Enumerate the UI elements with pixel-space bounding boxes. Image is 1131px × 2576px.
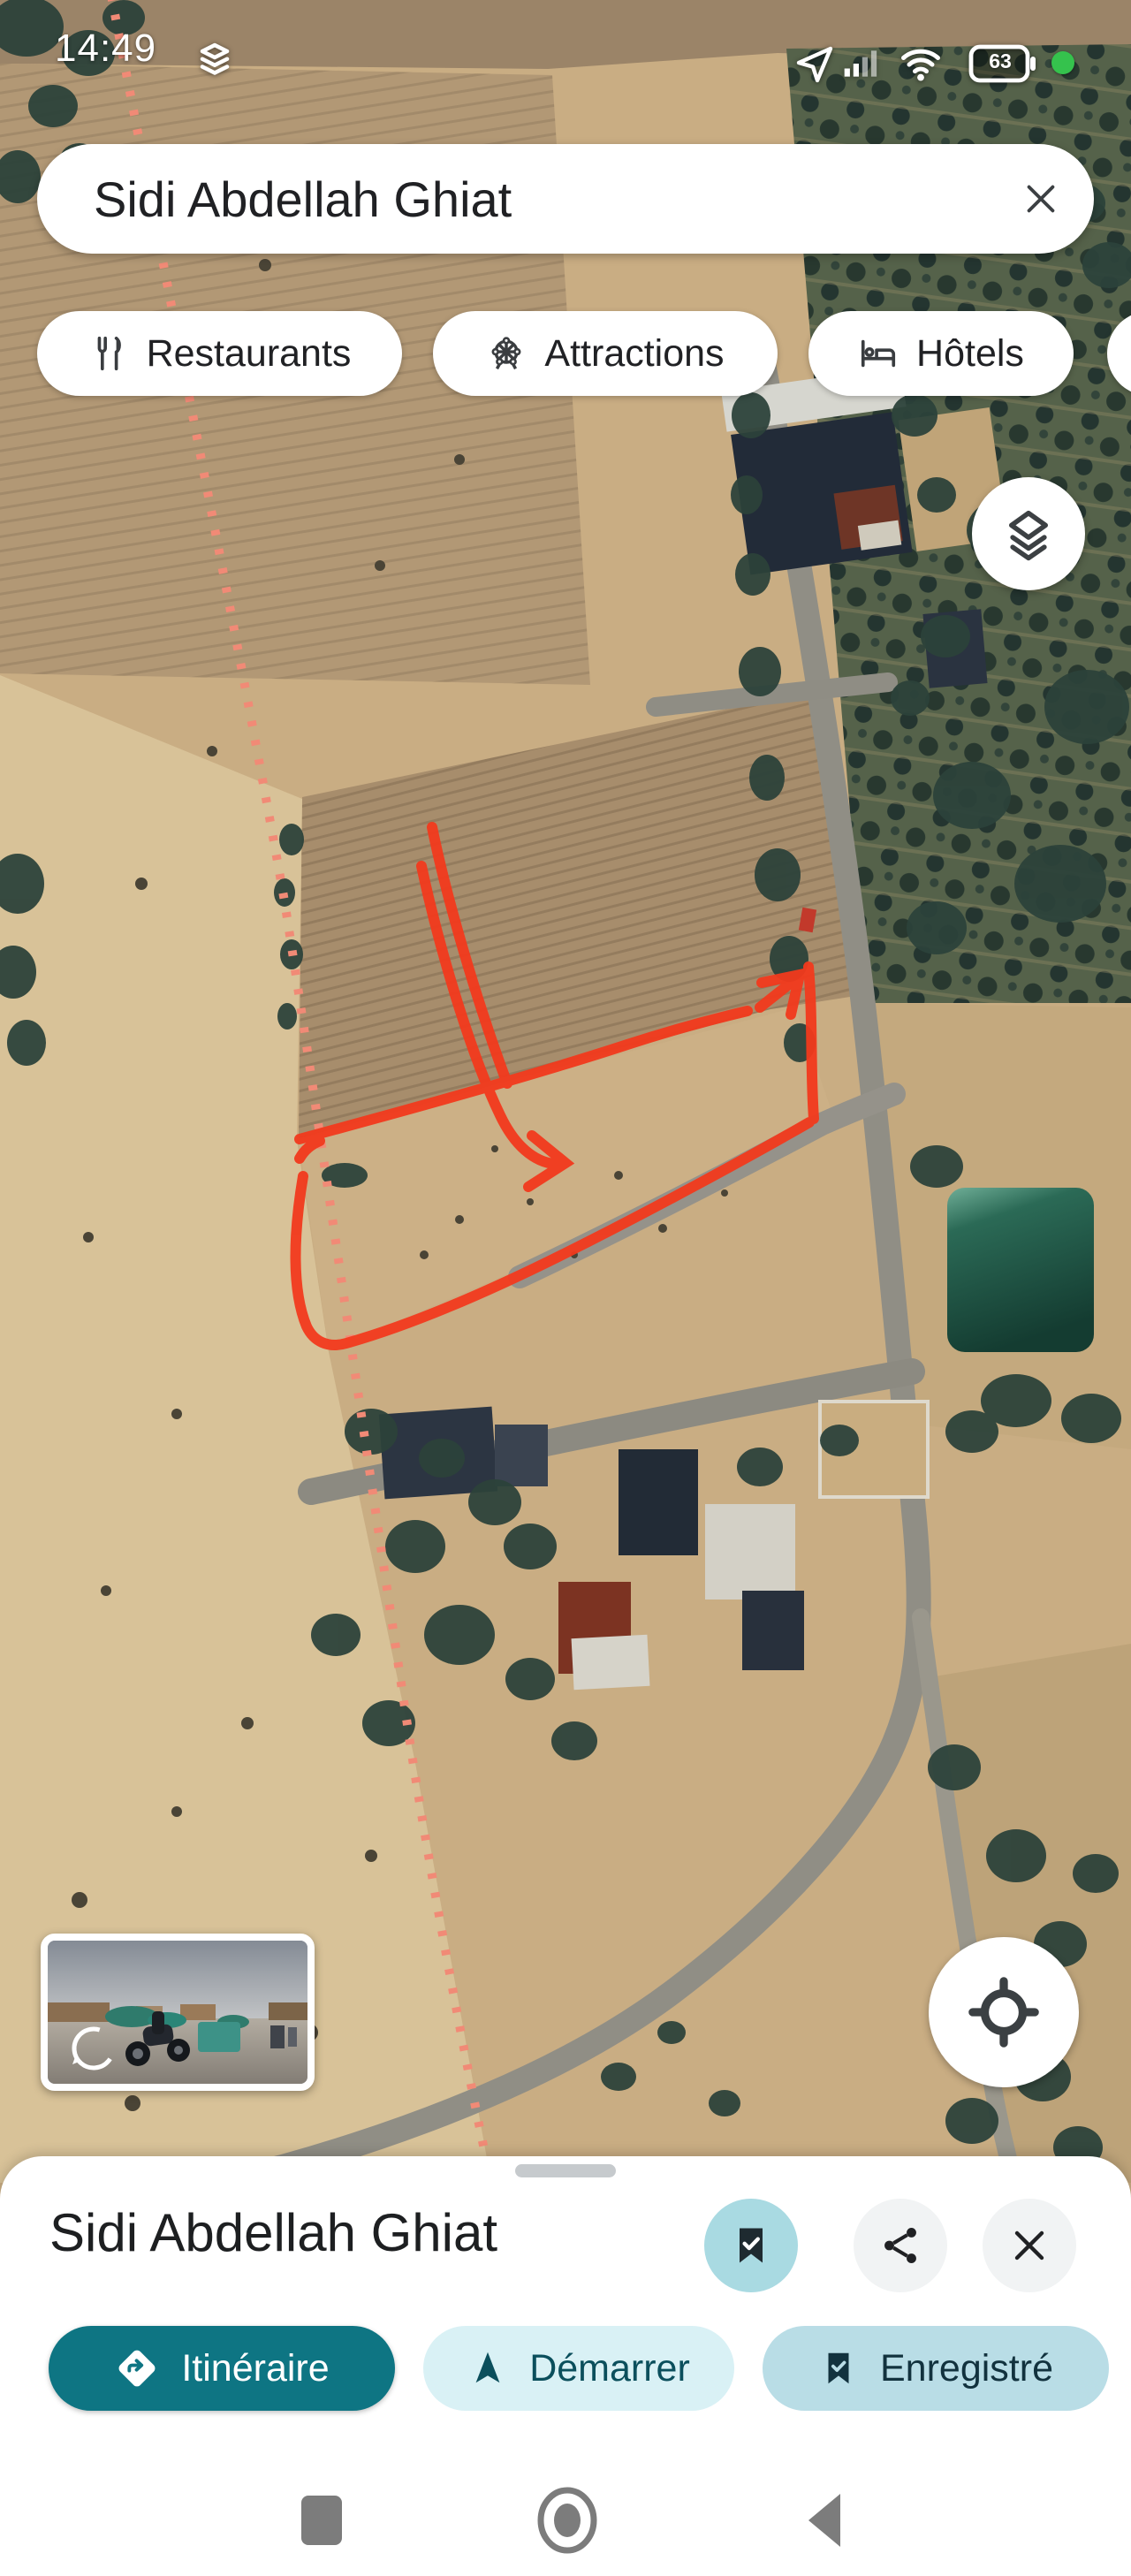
share-button[interactable]: [854, 2199, 947, 2292]
annotation-plot-right: [808, 967, 814, 1119]
sheet-drag-handle[interactable]: [515, 2164, 616, 2177]
restaurant-icon: [88, 333, 129, 374]
hotel-icon: [858, 333, 899, 374]
status-bar: 14:49 63: [0, 0, 1131, 102]
bookmark-check-icon: [818, 2348, 859, 2389]
start-navigation-button[interactable]: Démarrer: [423, 2326, 734, 2411]
sheet-close-button[interactable]: [983, 2199, 1076, 2292]
cell-signal-icon: [841, 44, 880, 83]
saved-button[interactable]: Enregistré: [763, 2326, 1109, 2411]
home-circle-icon[interactable]: [535, 2487, 599, 2554]
location-share-icon: [793, 42, 836, 85]
clock: 14:49: [55, 27, 156, 71]
chip-attractions[interactable]: Attractions: [433, 311, 778, 396]
my-location-button[interactable]: [929, 1937, 1079, 2087]
button-label: Démarrer: [529, 2347, 690, 2390]
place-title: Sidi Abdellah Ghiat: [49, 2202, 497, 2263]
battery-percent: 63: [977, 49, 1023, 73]
chip-hotels[interactable]: Hôtels: [808, 311, 1074, 396]
button-label: Enregistré: [880, 2347, 1053, 2390]
clear-search-button[interactable]: [988, 144, 1094, 254]
bookmark-check-icon: [728, 2223, 774, 2268]
map-layers-button[interactable]: [972, 477, 1085, 590]
back-triangle-icon[interactable]: [800, 2487, 849, 2554]
close-icon: [1008, 2224, 1051, 2267]
recents-square-icon[interactable]: [295, 2487, 348, 2554]
place-bottom-sheet: Sidi Abdellah Ghiat Itinéraire Démarrer: [0, 2156, 1131, 2466]
street-view-thumbnail[interactable]: [41, 1934, 315, 2091]
green-status-dot: [1051, 51, 1074, 74]
crosshair-icon: [966, 1974, 1042, 2050]
directions-button[interactable]: Itinéraire: [49, 2326, 395, 2411]
directions-icon: [114, 2345, 160, 2391]
button-label: Itinéraire: [181, 2347, 329, 2390]
chip-label: Hôtels: [916, 332, 1024, 376]
wifi-icon: [898, 41, 944, 87]
layers-icon: [999, 505, 1058, 563]
search-bar[interactable]: Sidi Abdellah Ghiat: [37, 144, 1094, 254]
partial-chip-icon: [1123, 333, 1131, 374]
close-icon: [1021, 179, 1061, 219]
saved-bookmark-button[interactable]: [704, 2199, 798, 2292]
share-icon: [878, 2223, 922, 2268]
chip-label: Attractions: [544, 332, 724, 376]
navigation-icon: [467, 2348, 508, 2389]
android-nav-bar: [0, 2466, 1131, 2576]
stacked-layers-icon: [196, 39, 233, 76]
street-view-scene: [48, 1941, 307, 2084]
chip-label: Restaurants: [147, 332, 352, 376]
pond: [947, 1188, 1094, 1352]
chip-restaurants[interactable]: Restaurants: [37, 311, 402, 396]
attractions-icon: [486, 333, 527, 374]
search-query[interactable]: Sidi Abdellah Ghiat: [94, 171, 988, 228]
